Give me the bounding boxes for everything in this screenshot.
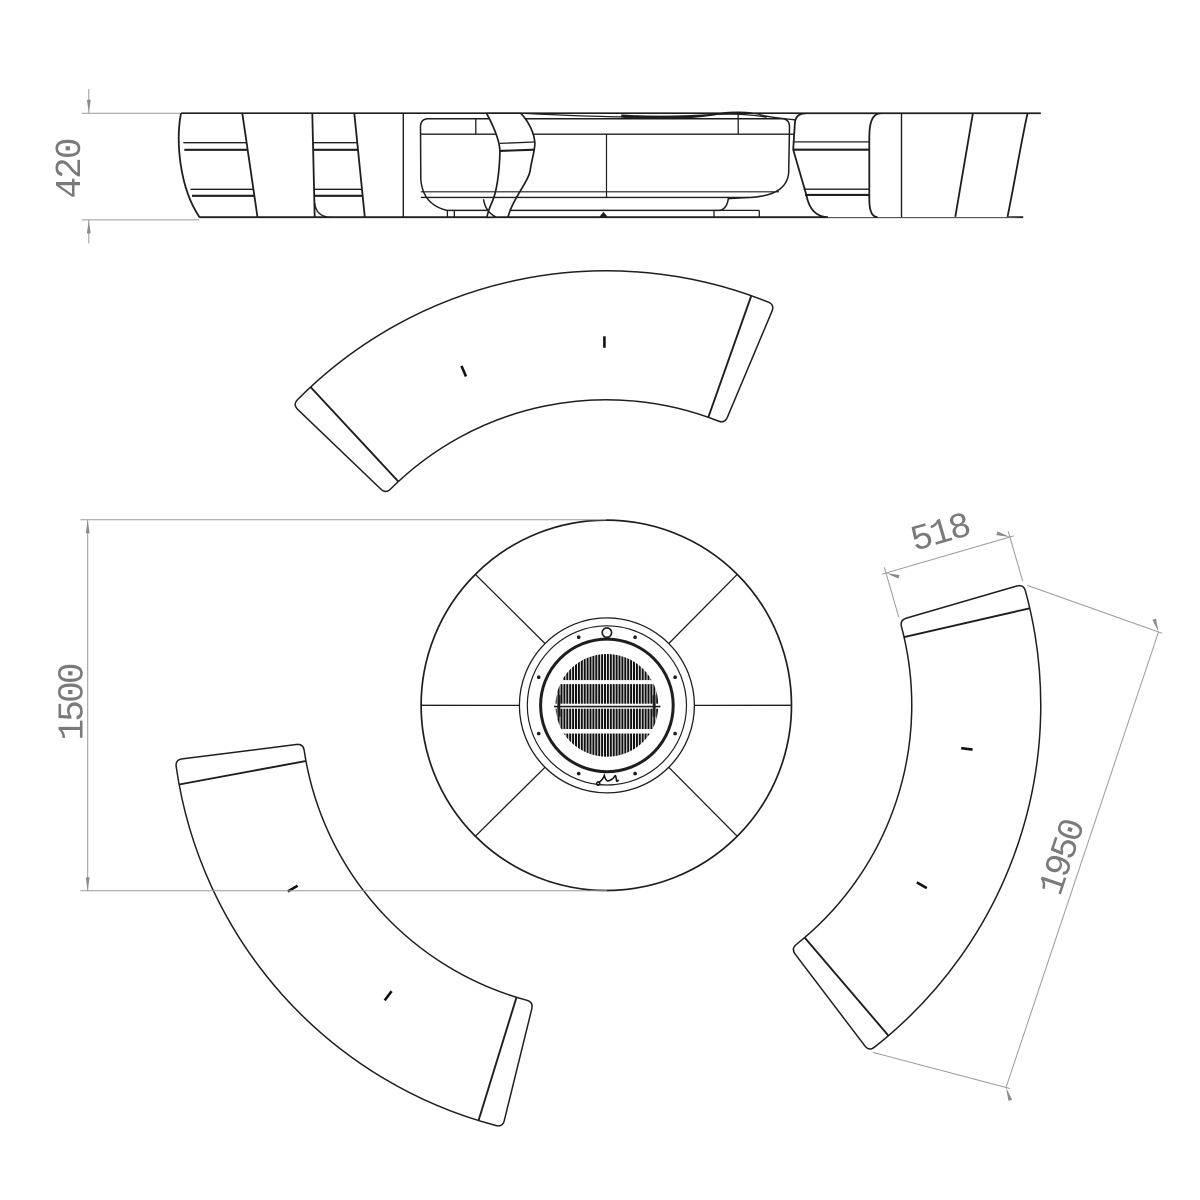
svg-text:1500: 1500 — [53, 663, 94, 741]
svg-text:420: 420 — [50, 138, 91, 199]
